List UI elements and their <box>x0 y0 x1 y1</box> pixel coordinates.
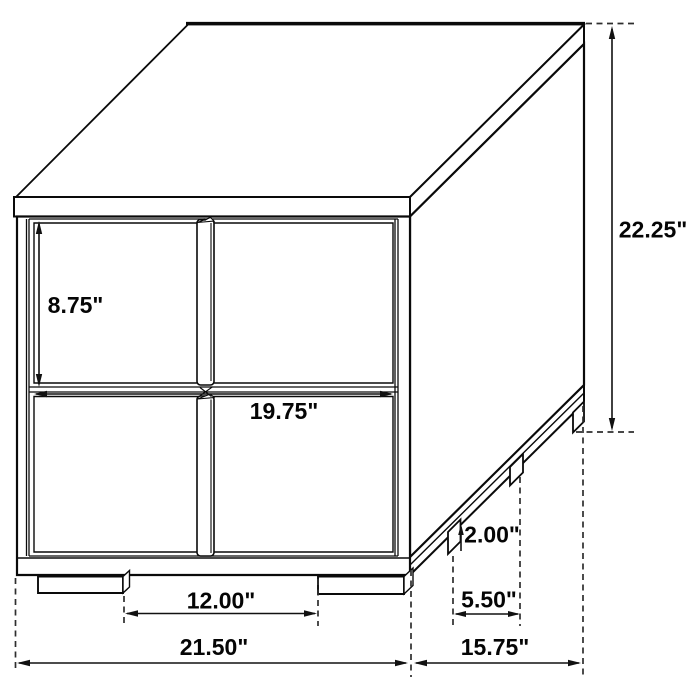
dim-label-foot-height: 2.00" <box>464 522 520 548</box>
side-back-mid-foot <box>510 454 523 486</box>
nightstand-dimension-diagram: 8.75" 19.75" 22.25" 2.00" 5.50" <box>0 0 700 700</box>
dim-label-overall-height: 22.25" <box>619 217 687 243</box>
dim-label-drawer-height: 8.75" <box>48 292 104 318</box>
front-right-foot-face <box>318 577 404 595</box>
arrowhead-left-icon <box>17 660 30 666</box>
arrowhead-right-icon <box>304 610 317 616</box>
dim-overall-height: 22.25" <box>576 24 687 433</box>
arrowhead-right-icon <box>395 660 408 666</box>
dim-label-side-foot-spacing: 5.50" <box>461 587 517 613</box>
dim-label-front-foot-spacing: 12.00" <box>187 588 255 614</box>
dim-label-drawer-width: 19.75" <box>250 398 318 424</box>
drawer-handle-top <box>197 218 214 386</box>
dim-label-overall-width: 21.50" <box>180 634 248 660</box>
top-front-edge <box>14 197 410 217</box>
dim-label-overall-depth: 15.75" <box>461 634 529 660</box>
front-left-foot-face <box>38 577 123 594</box>
arrowhead-right-icon <box>568 660 581 666</box>
dim-foot-height: 2.00" <box>458 522 520 552</box>
arrowhead-up-icon <box>609 26 615 39</box>
arrowhead-left-icon <box>125 610 138 616</box>
arrowhead-down-icon <box>609 418 615 431</box>
diagram-canvas: 8.75" 19.75" 22.25" 2.00" 5.50" <box>0 0 700 700</box>
dim-front-foot-spacing: 12.00" <box>124 579 318 626</box>
arrowhead-left-icon <box>414 660 427 666</box>
drawer-handle-bottom <box>197 387 214 556</box>
